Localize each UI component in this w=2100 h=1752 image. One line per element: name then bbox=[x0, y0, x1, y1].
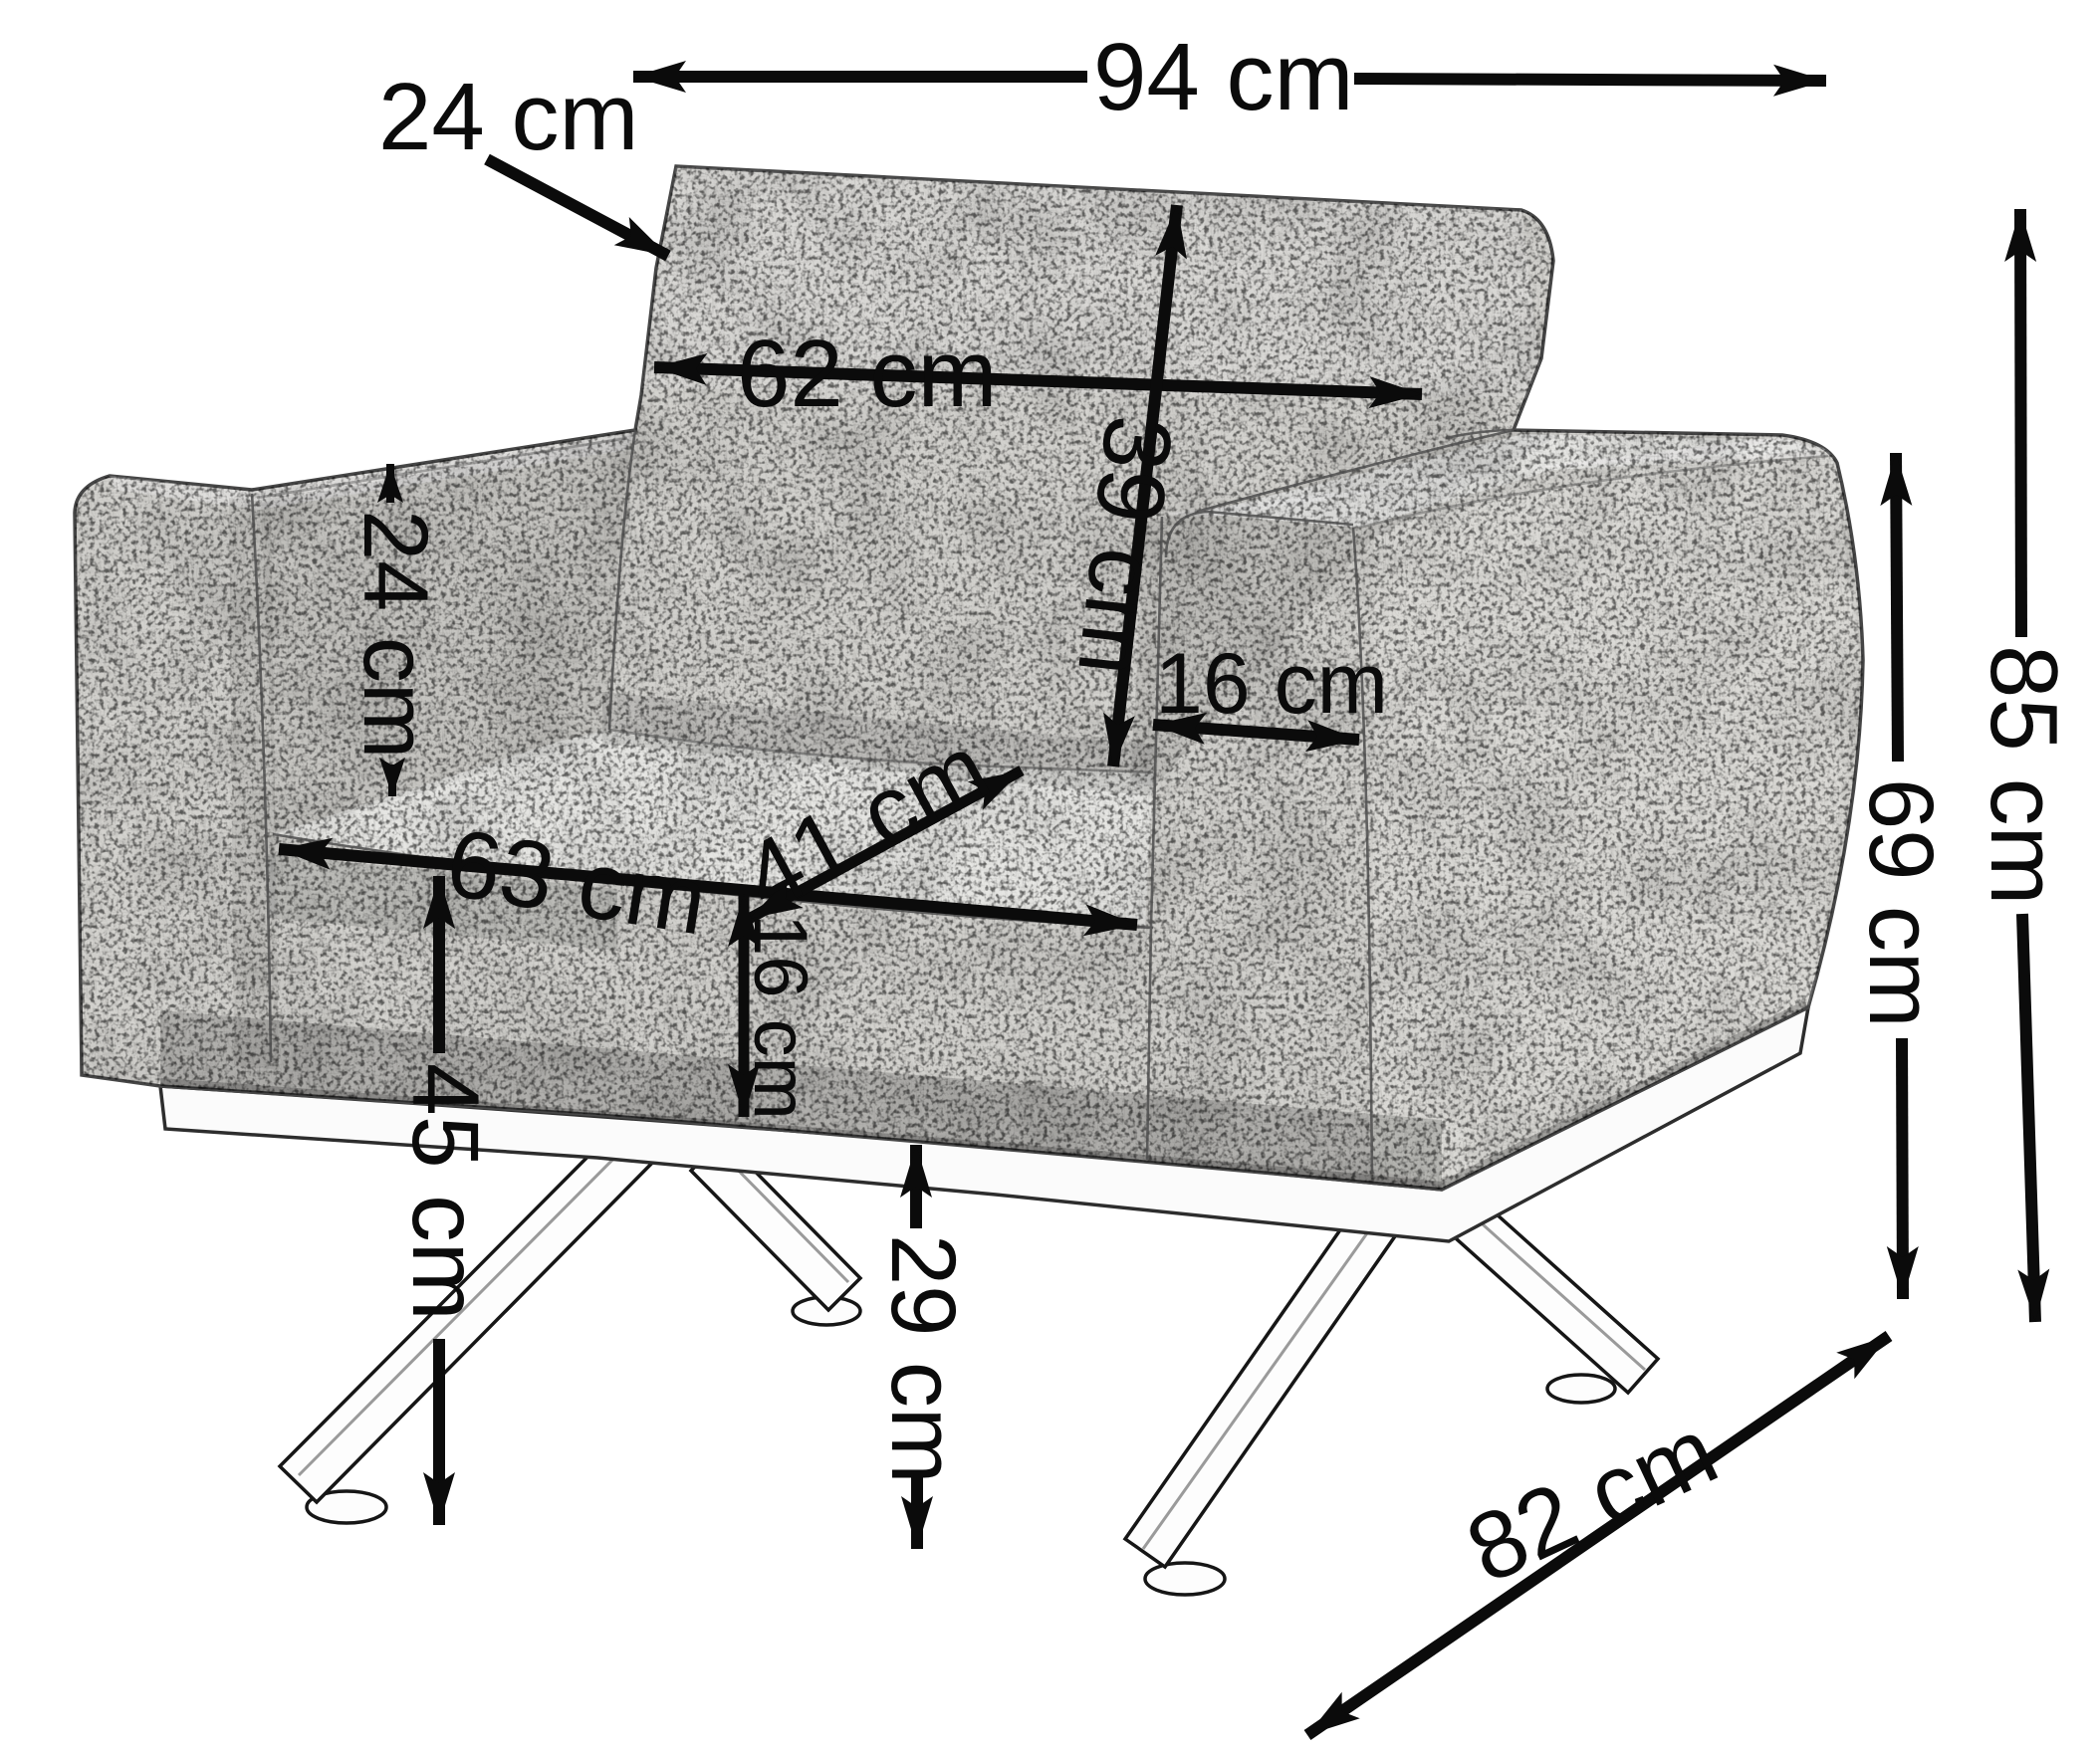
svg-text:24 cm: 24 cm bbox=[378, 64, 638, 170]
svg-text:29 cm: 29 cm bbox=[872, 1234, 974, 1484]
svg-text:16 cm: 16 cm bbox=[1155, 636, 1388, 732]
svg-text:62 cm: 62 cm bbox=[737, 321, 997, 427]
svg-text:24 cm: 24 cm bbox=[345, 510, 446, 760]
svg-text:94 cm: 94 cm bbox=[1093, 24, 1353, 130]
svg-text:69 cm: 69 cm bbox=[1850, 778, 1952, 1028]
svg-text:45 cm: 45 cm bbox=[392, 1063, 498, 1321]
svg-text:85 cm: 85 cm bbox=[1971, 645, 2077, 905]
svg-text:16 cm: 16 cm bbox=[738, 914, 822, 1120]
